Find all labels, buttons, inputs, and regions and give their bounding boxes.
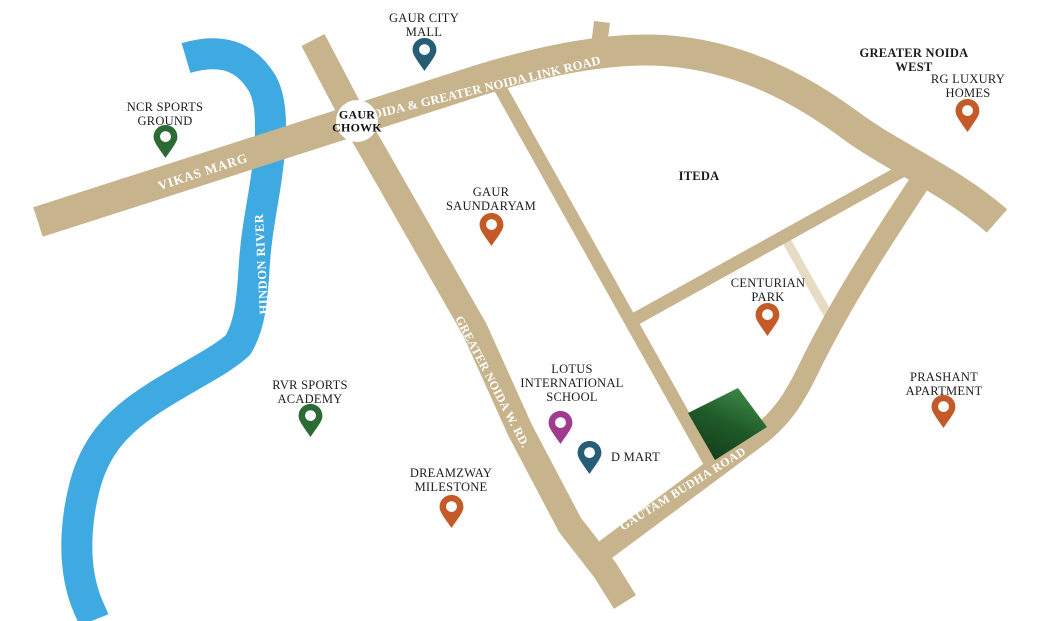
label-line: PRASHANT [906, 370, 983, 384]
ncr-sports-ground-pin [152, 124, 179, 159]
gaur-saundaryam-pin [478, 212, 505, 247]
rg-luxury-homes-label: RG LUXURY HOMES [931, 72, 1005, 100]
centurian-park-label: CENTURIAN PARK [731, 276, 805, 304]
label-line: GREATER NOIDA [860, 46, 969, 60]
dreamzway-milestone-pin [438, 494, 465, 529]
centurian-park-pin [754, 302, 781, 337]
label-line: SAUNDARYAM [446, 199, 536, 213]
label-line: CHOWK [332, 121, 382, 134]
d-mart-label: D MART [611, 450, 660, 464]
lotus-international-school-pin [547, 410, 574, 445]
road-secondary [499, 86, 714, 470]
dreamzway-milestone-label: DREAMZWAY MILESTONE [410, 466, 492, 494]
label-line: MILESTONE [410, 480, 492, 494]
gaur-city-mall-label: GAUR CITY MALL [389, 11, 459, 39]
gaur-saundaryam-label: GAUR SAUNDARYAM [446, 185, 536, 213]
location-map: VIKAS MARG NOIDA & GREATER NOIDA LINK RO… [0, 0, 1040, 621]
label-line: NCR SPORTS [127, 100, 203, 114]
rvr-sports-academy-pin [297, 403, 324, 438]
label-line: INTERNATIONAL [520, 376, 623, 390]
label-line: LOTUS [520, 362, 623, 376]
label-line: GAUR [446, 185, 536, 199]
label-line: GAUR CITY [389, 11, 459, 25]
label-line: SCHOOL [520, 390, 623, 404]
iteda-area-label: ITEDA [679, 169, 720, 183]
gaur-city-mall-pin [411, 37, 438, 72]
greater-noida-west-area-label: GREATER NOIDA WEST [860, 46, 969, 74]
basemap-canvas [0, 0, 1040, 621]
prashant-apartment-pin [930, 394, 957, 429]
gaur-chowk-label: GAUR CHOWK [332, 109, 382, 134]
rg-luxury-homes-pin [954, 98, 981, 133]
label-line: DREAMZWAY [410, 466, 492, 480]
d-mart-pin [576, 440, 603, 475]
label-line: RG LUXURY [931, 72, 1005, 86]
label-line: RVR SPORTS [272, 378, 347, 392]
lotus-international-school-label: LOTUS INTERNATIONAL SCHOOL [520, 362, 623, 404]
rvr-sports-academy-label: RVR SPORTS ACADEMY [272, 378, 347, 406]
label-line: GAUR [332, 109, 382, 122]
label-line: ITEDA [679, 169, 720, 183]
label-line: CENTURIAN [731, 276, 805, 290]
label-line: D MART [611, 450, 660, 464]
